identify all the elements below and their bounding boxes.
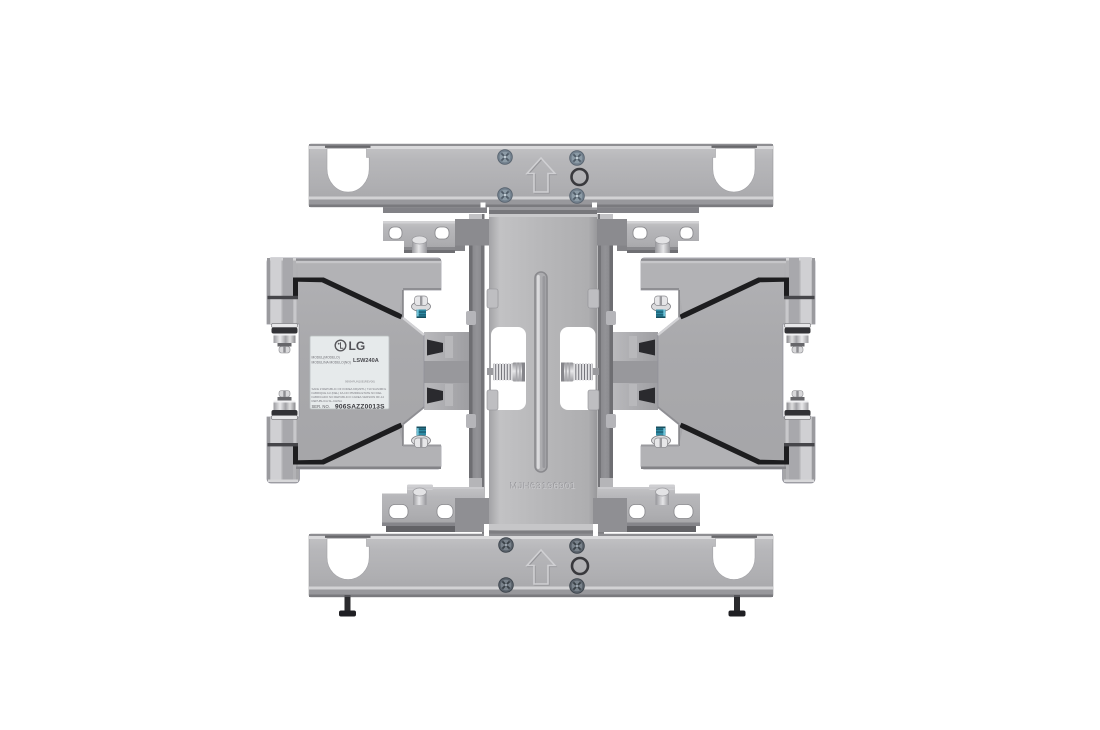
- svg-text:REPUBLICA SL-CHINA: REPUBLICA SL-CHINA: [312, 399, 343, 403]
- svg-text:9999-RUN10E(REV00): 9999-RUN10E(REV00): [345, 380, 375, 384]
- svg-text:SER. NO.: SER. NO.: [312, 404, 330, 409]
- svg-text:LG: LG: [349, 339, 366, 353]
- svg-text:906SAZZ0013S: 906SAZZ0013S: [335, 404, 385, 411]
- svg-text:MJH63196901: MJH63196901: [510, 481, 576, 492]
- svg-text:MODEL(MODELO): MODEL(MODELO): [312, 356, 340, 360]
- svg-text:LSW240A: LSW240A: [353, 358, 379, 364]
- svg-text:MODELINA MODELO(NO): MODELINA MODELO(NO): [312, 361, 351, 365]
